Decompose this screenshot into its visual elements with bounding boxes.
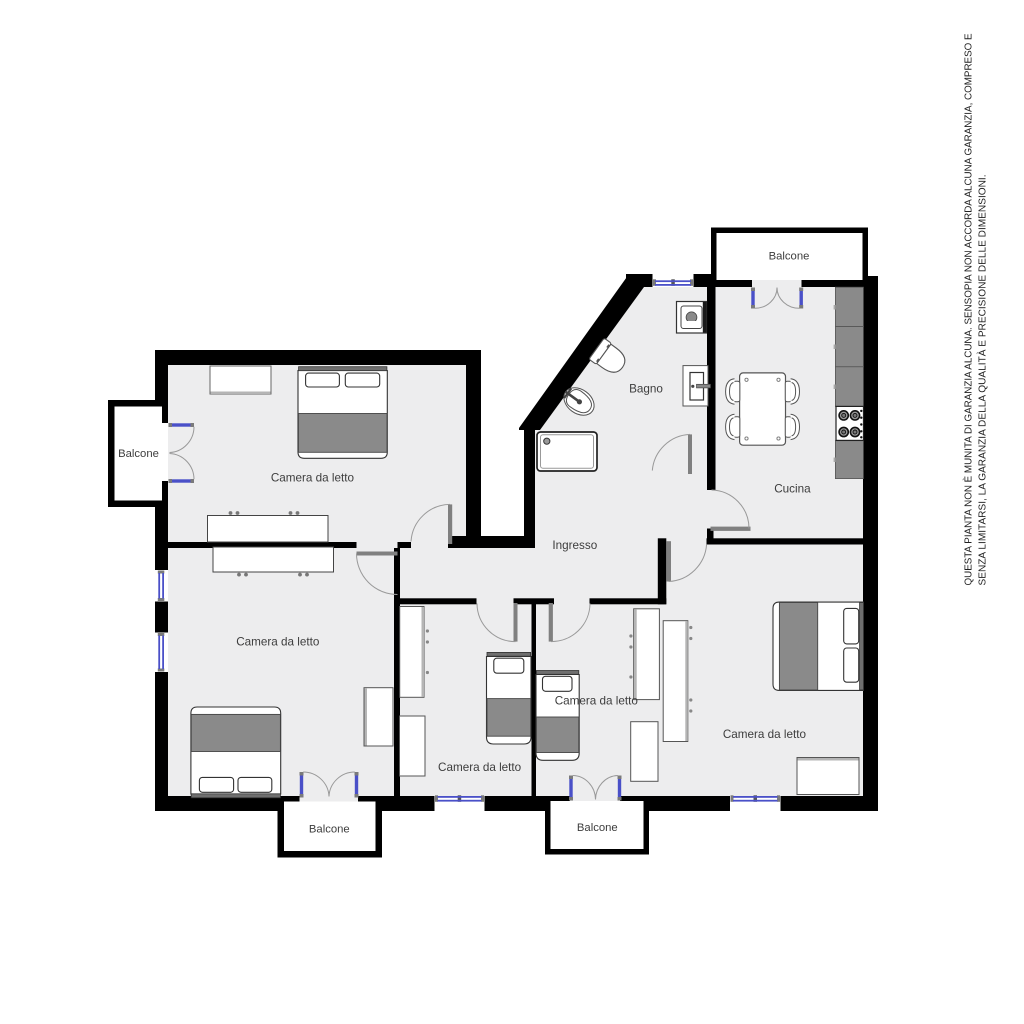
svg-text:Camera da letto: Camera da letto	[555, 695, 639, 708]
svg-text:Bagno: Bagno	[629, 382, 663, 395]
svg-text:Camera da letto: Camera da letto	[438, 761, 522, 774]
svg-text:QUESTA PIANTA NON È MUNITA DI: QUESTA PIANTA NON È MUNITA DI GARANZIA A…	[962, 34, 975, 586]
svg-text:Camera da letto: Camera da letto	[236, 635, 320, 648]
svg-text:Cucina: Cucina	[774, 483, 811, 496]
svg-text:Balcone: Balcone	[309, 824, 350, 836]
svg-text:Camera da letto: Camera da letto	[723, 728, 807, 741]
svg-text:Balcone: Balcone	[577, 822, 618, 834]
svg-text:Camera da letto: Camera da letto	[271, 472, 355, 485]
svg-text:Balcone: Balcone	[118, 448, 159, 460]
svg-text:SENZA LIMITARSI, LA GARANZIA D: SENZA LIMITARSI, LA GARANZIA DELLA QUALI…	[976, 175, 989, 586]
svg-text:Ingresso: Ingresso	[552, 539, 597, 552]
svg-text:Balcone: Balcone	[769, 250, 810, 262]
